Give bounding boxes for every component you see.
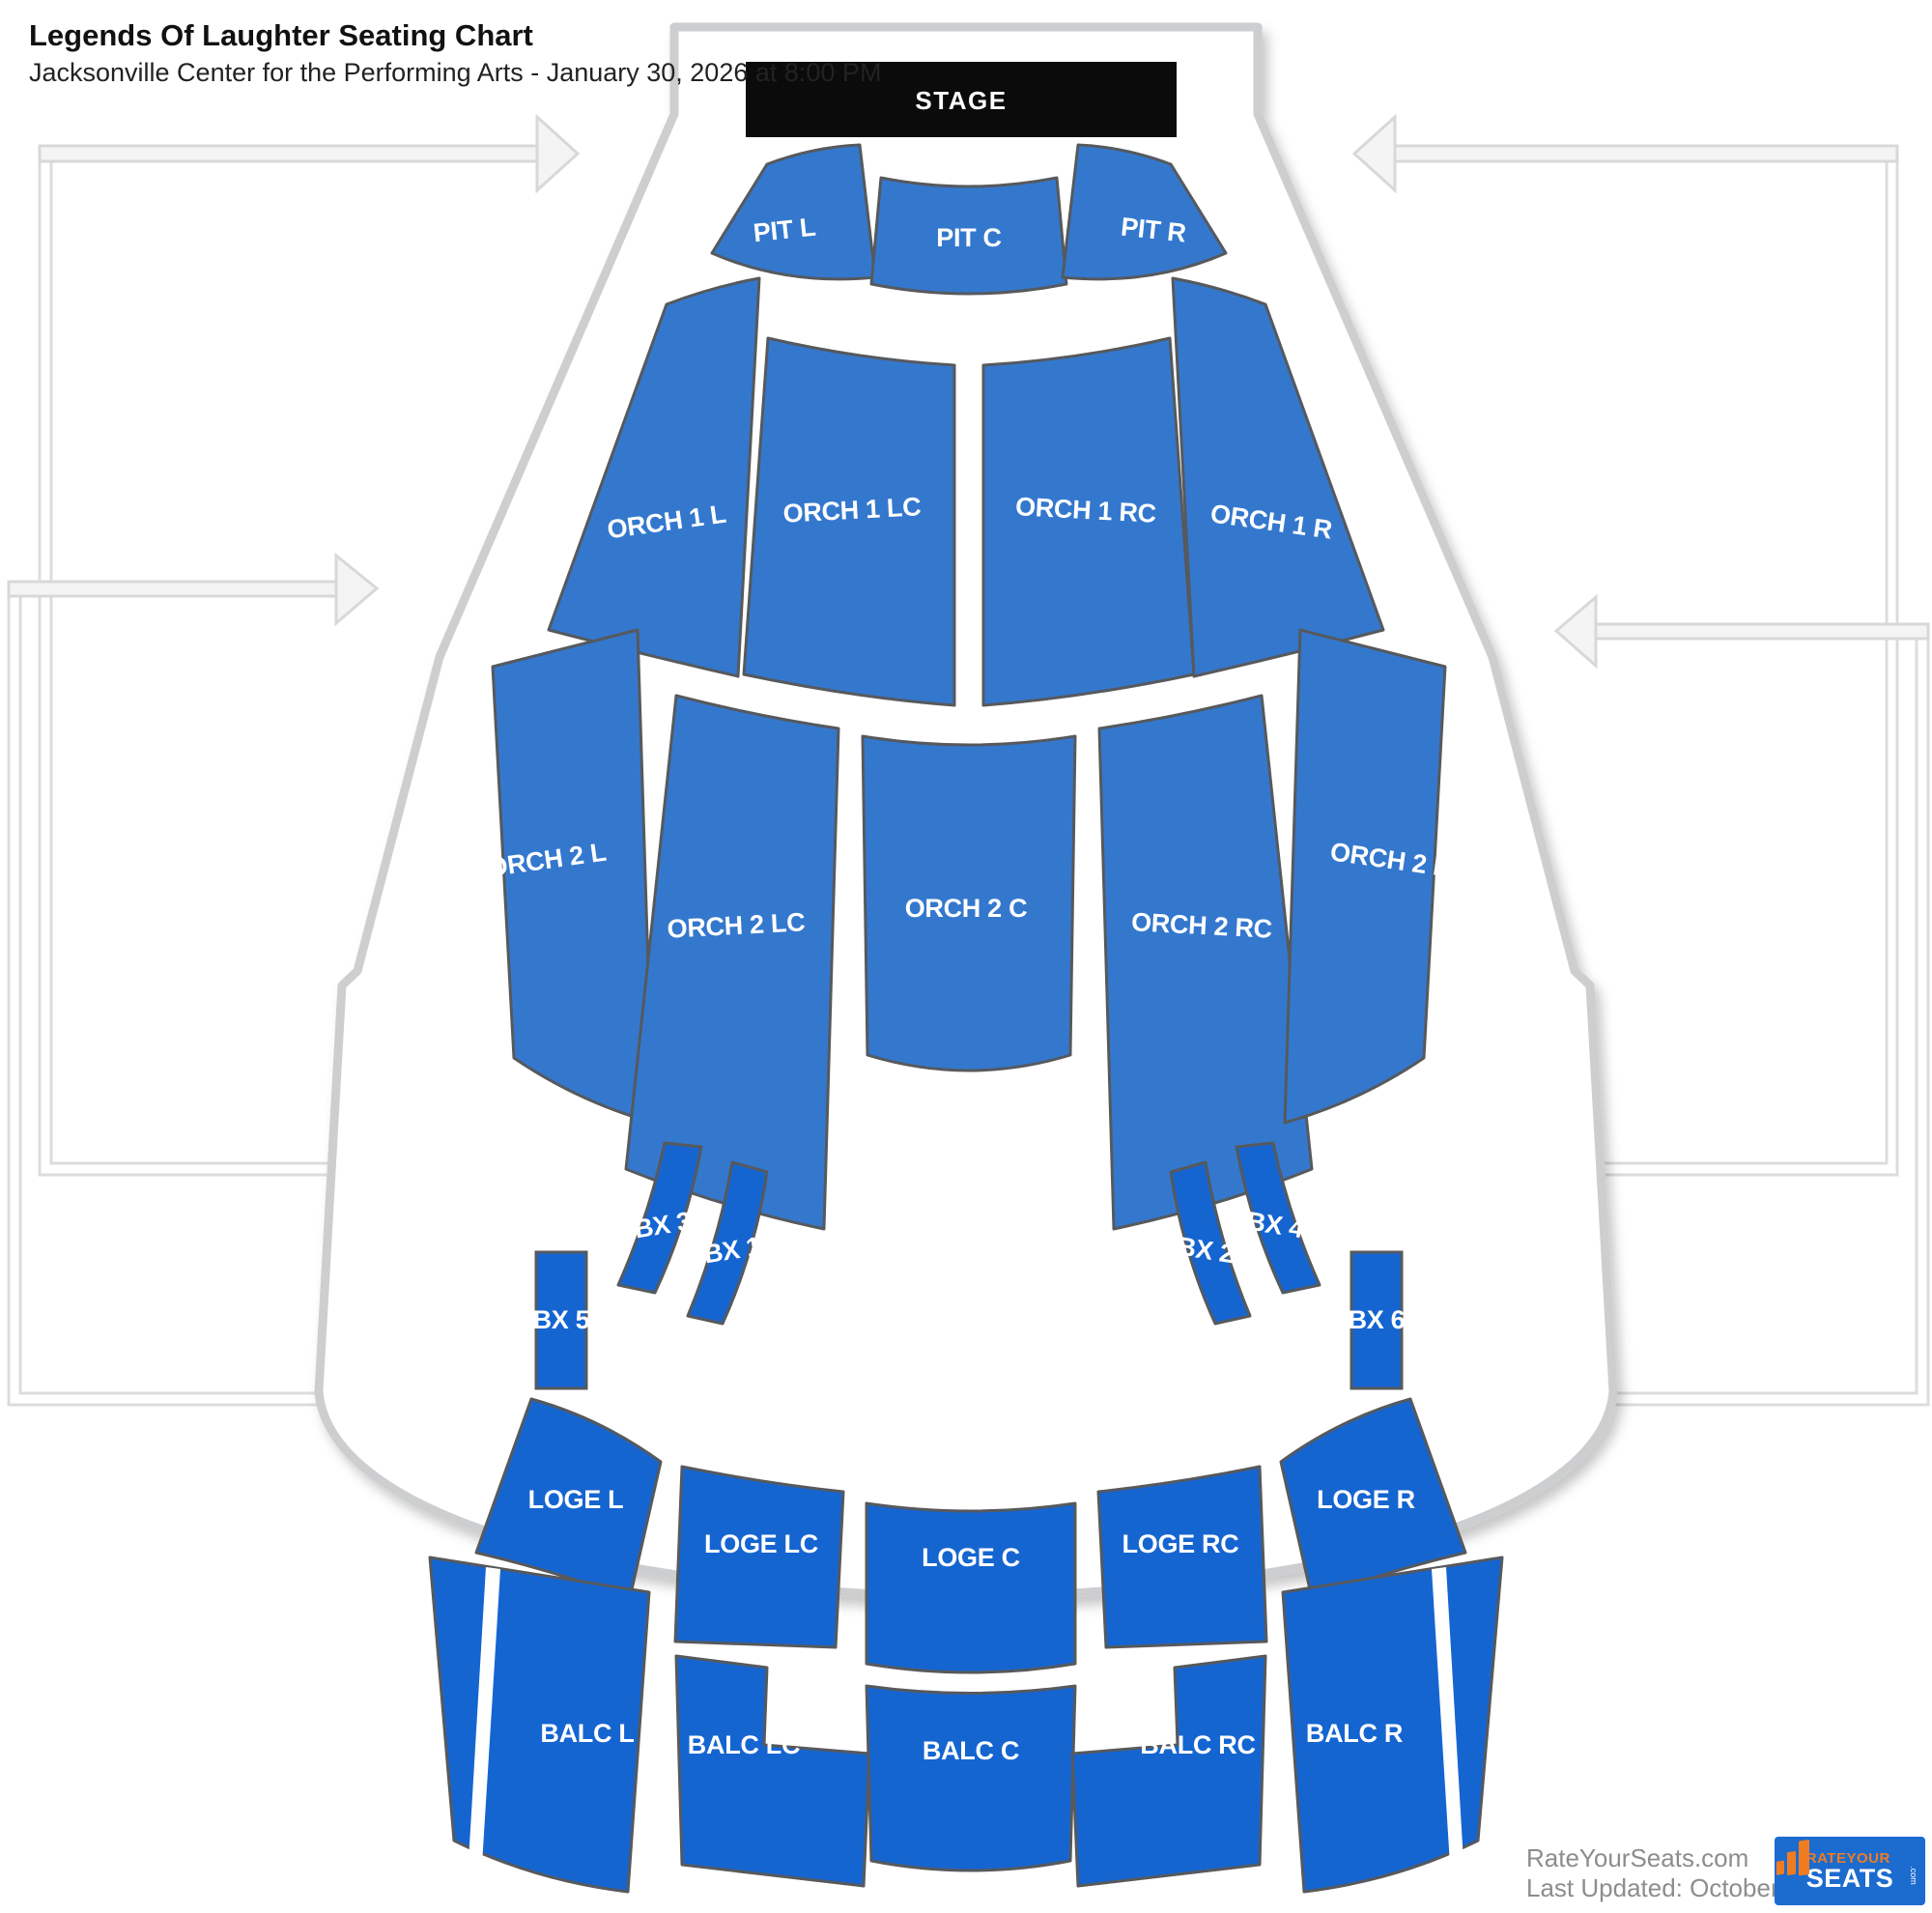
page-title: Legends Of Laughter Seating Chart: [29, 17, 881, 55]
ramp-rect-left-2: [9, 582, 358, 1405]
logo-suffix: .com: [1909, 1866, 1918, 1885]
event-subtitle: Jacksonville Center for the Performing A…: [29, 55, 881, 90]
logo-bars-icon: [1775, 1837, 1813, 1881]
logo-texts: RATEYOUR SEATS: [1806, 1851, 1894, 1892]
ramp-rect-left-2-inner: [20, 596, 358, 1393]
chart-header: Legends Of Laughter Seating Chart Jackso…: [29, 17, 881, 90]
arrow-head-right-1-icon: [1354, 117, 1395, 190]
section-balc-rc[interactable]: [1072, 1656, 1265, 1886]
logo-line2: SEATS: [1806, 1866, 1894, 1892]
arrow-head-right-2-icon: [1556, 597, 1596, 666]
section-loge-lc[interactable]: [675, 1467, 843, 1647]
section-balc-l[interactable]: [430, 1557, 649, 1892]
section-pit-c[interactable]: [871, 178, 1066, 294]
section-loge-c[interactable]: [867, 1503, 1075, 1672]
stage-label: STAGE: [915, 86, 1007, 115]
arrow-shaft-right-2: [1596, 624, 1928, 639]
arrow-head-left-1-icon: [537, 117, 578, 190]
arrow-shaft-right-1: [1395, 146, 1897, 161]
seating-chart-page: Legends Of Laughter Seating Chart Jackso…: [0, 0, 1932, 1913]
arrow-head-left-2-icon: [336, 556, 377, 623]
section-balc-r[interactable]: [1283, 1557, 1502, 1892]
section-loge-rc[interactable]: [1098, 1467, 1266, 1647]
arrow-shaft-left-2: [9, 582, 336, 596]
section-balc-c[interactable]: [867, 1686, 1075, 1870]
section-balc-lc[interactable]: [676, 1656, 869, 1886]
section-orch-2-c[interactable]: [863, 736, 1075, 1071]
rateyourseats-logo[interactable]: RATEYOUR SEATS .com: [1775, 1837, 1925, 1905]
section-bx-5[interactable]: [536, 1252, 586, 1388]
seating-map-svg: STAGE: [0, 0, 1932, 1913]
section-bx-6[interactable]: [1351, 1252, 1402, 1388]
section-orch-1-rc[interactable]: [983, 338, 1194, 705]
arrow-shaft-left-1: [40, 146, 537, 161]
section-orch-1-lc[interactable]: [744, 338, 954, 705]
section-orch-2-r[interactable]: [1285, 630, 1445, 1123]
section-orch-2-l[interactable]: [493, 630, 653, 1123]
